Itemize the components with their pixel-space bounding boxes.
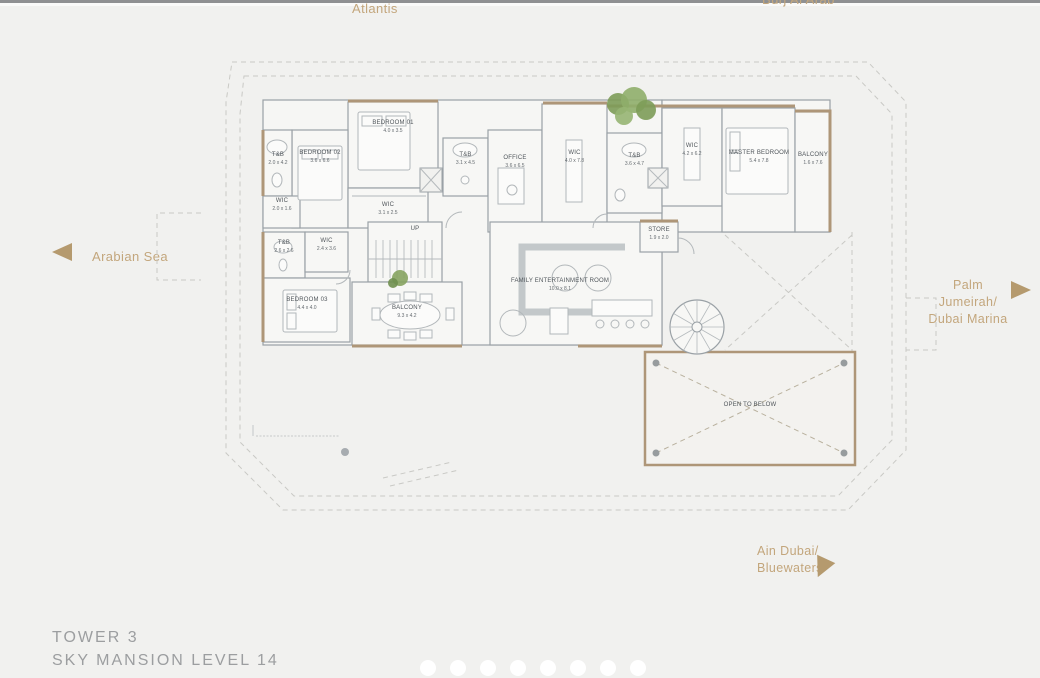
pagination-dot-8[interactable] bbox=[630, 660, 646, 676]
plan-title: TOWER 3 SKY MANSION LEVEL 14 bbox=[52, 626, 279, 672]
plan-title-tower: TOWER 3 bbox=[52, 626, 279, 649]
column-markers bbox=[253, 425, 349, 456]
pagination-dot-4[interactable] bbox=[510, 660, 526, 676]
pagination-dot-3[interactable] bbox=[480, 660, 496, 676]
terrace-open-to-below bbox=[645, 352, 855, 465]
floor-plan-drawing bbox=[0, 0, 1040, 678]
pagination-dot-2[interactable] bbox=[450, 660, 466, 676]
plan-title-level: SKY MANSION LEVEL 14 bbox=[52, 649, 279, 672]
pagination-dot-1[interactable] bbox=[420, 660, 436, 676]
floor-plan: BEDROOM 014.0 x 3.5 BEDROOM 023.6 x 6.6 … bbox=[0, 0, 1040, 678]
spiral-staircase-icon bbox=[670, 300, 724, 354]
pagination-dot-6[interactable] bbox=[570, 660, 586, 676]
pagination-dot-5[interactable] bbox=[540, 660, 556, 676]
pagination-dots bbox=[420, 660, 660, 676]
pagination-dot-7[interactable] bbox=[600, 660, 616, 676]
